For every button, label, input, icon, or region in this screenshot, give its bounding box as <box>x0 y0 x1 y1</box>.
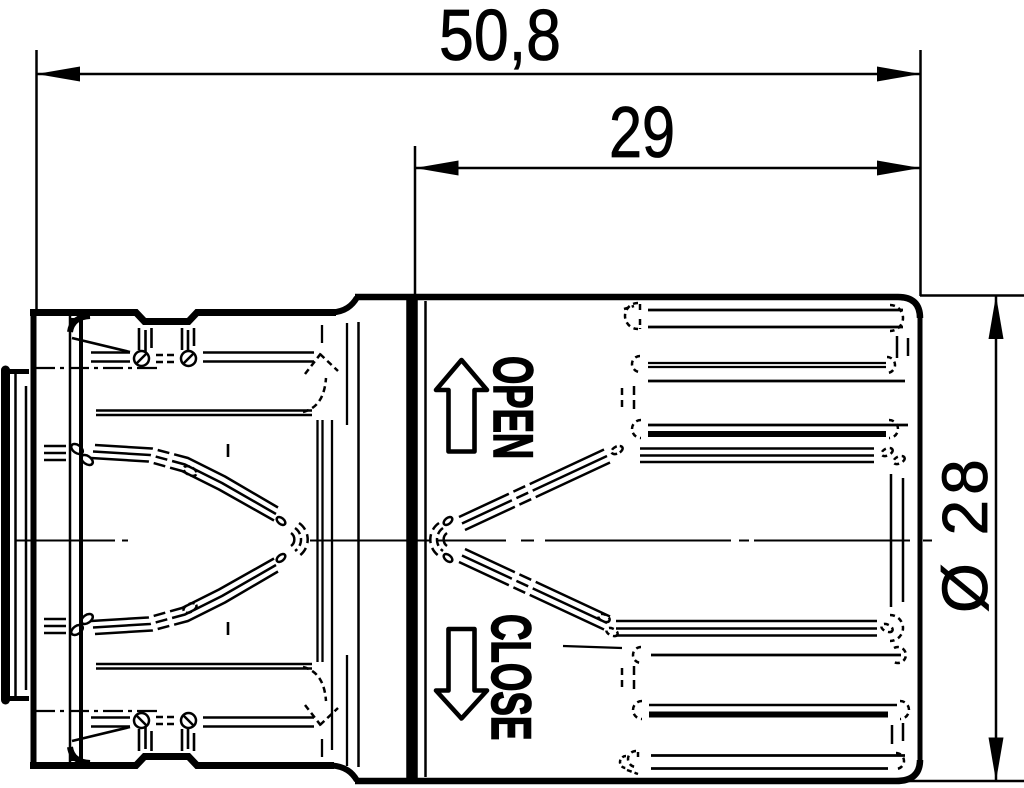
svg-text:OPEN: OPEN <box>481 356 544 459</box>
svg-text:CLOSE: CLOSE <box>479 614 542 740</box>
svg-text:50,8: 50,8 <box>439 0 561 76</box>
svg-text:29: 29 <box>609 92 675 173</box>
svg-text:Ø 28: Ø 28 <box>929 454 1001 613</box>
